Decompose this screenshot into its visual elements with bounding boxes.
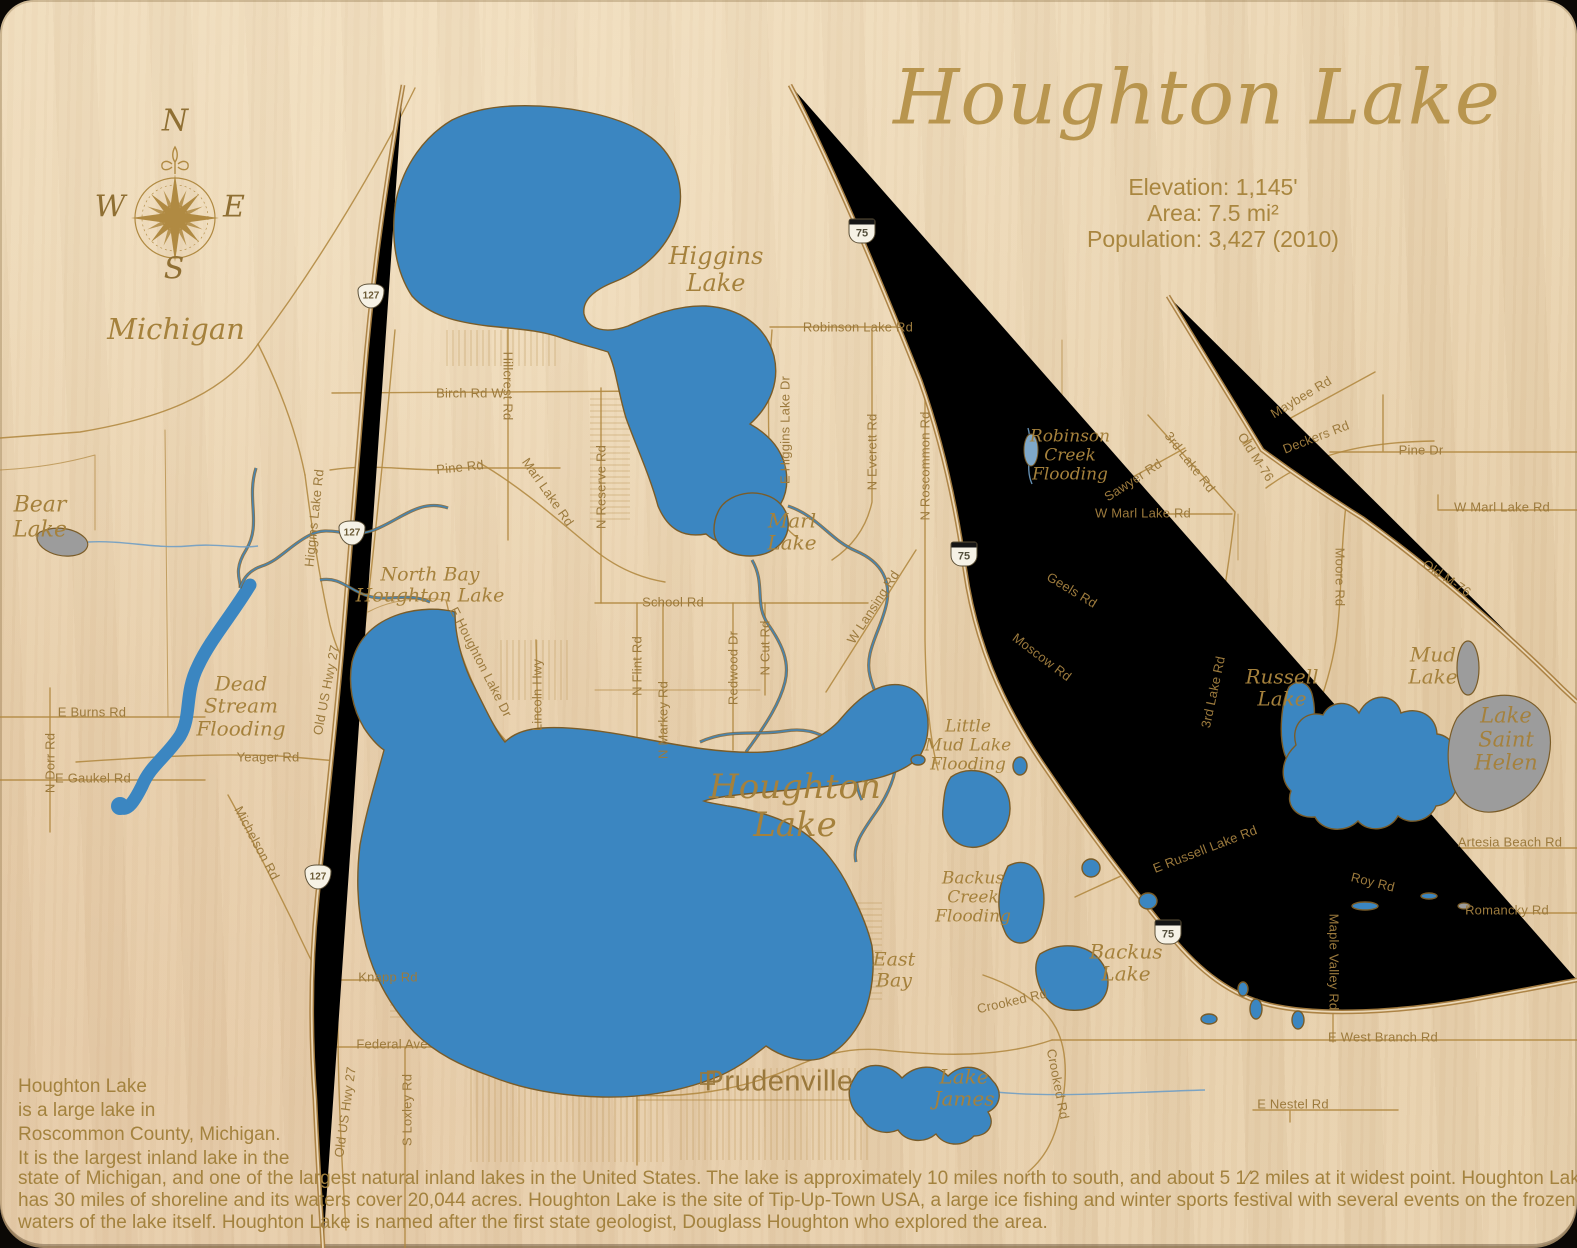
compass-east: E <box>223 190 245 225</box>
water-label: Backus Creek Flooding <box>935 869 1011 926</box>
stat-area: Area: 7.5 mi² <box>1087 200 1339 226</box>
road-label: N Markey Rd <box>656 681 671 759</box>
description-line: It is the largest inland lake in the <box>18 1148 289 1170</box>
road-label: Moore Rd <box>1333 548 1348 607</box>
road-label: Maple Valley Rd <box>1327 914 1342 1011</box>
road-label: N Roscommon Rd <box>918 412 933 521</box>
compass-west: W <box>95 190 126 225</box>
lake-stats: Elevation: 1,145' Area: 7.5 mi² Populati… <box>1087 174 1339 252</box>
road-label: E Burns Rd <box>58 705 126 720</box>
water-label: Little Mud Lake Flooding <box>925 717 1011 774</box>
mud-lake-water <box>1457 641 1479 695</box>
road-label: Yeager Rd <box>237 750 300 765</box>
water-label: Backus Lake <box>1089 941 1162 986</box>
highway-shield: 75 <box>1155 920 1182 945</box>
state-label: Michigan <box>107 312 245 346</box>
stat-population: Population: 3,427 (2010) <box>1087 226 1339 252</box>
water-label: East Bay <box>873 950 916 993</box>
water-label: Marl Lake <box>767 510 816 555</box>
sand-lake-water <box>1283 697 1457 829</box>
highway-number: 127 <box>363 285 380 308</box>
water-label: Dead Stream Flooding <box>196 672 285 739</box>
road-label: Lincoln Hwy <box>530 659 545 731</box>
road-label: E Nestel Rd <box>1257 1097 1329 1112</box>
water-label: Lake James <box>933 1066 994 1111</box>
water-label: Mud Lake <box>1408 644 1457 689</box>
water-label: Higgins Lake <box>669 243 764 297</box>
water-label: Russell Lake <box>1245 666 1318 711</box>
compass-north: N <box>162 104 188 139</box>
highway-number: 75 <box>958 548 970 566</box>
road-label: E Higgins Lake Dr <box>778 376 793 484</box>
little-mud-lake-water <box>943 771 1010 848</box>
highway-number: 127 <box>310 866 327 889</box>
road-label: Artesia Beach Rd <box>1458 835 1562 850</box>
road-label: S Loxley Rd <box>400 1074 415 1146</box>
road-label: E Gaukel Rd <box>55 771 131 786</box>
road-label: Birch Rd W <box>436 386 504 401</box>
page-title: Houghton Lake <box>893 53 1501 142</box>
road-label: N Flint Rd <box>630 636 645 696</box>
water-label: Lake Saint Helen <box>1474 705 1537 776</box>
description-line: has 30 miles of shoreline and its waters… <box>18 1190 1576 1212</box>
highway-number: 75 <box>1162 926 1174 944</box>
description-line: waters of the lake itself. Houghton Lake… <box>18 1212 1048 1234</box>
road-label: N Reserve Rd <box>594 445 609 529</box>
road-label: Federal Ave <box>356 1037 427 1052</box>
road-label: E West Branch Rd <box>1328 1030 1438 1045</box>
road-label: Romancky Rd <box>1465 903 1549 918</box>
road-label: Pine Dr <box>1399 443 1444 458</box>
road-label: W Marl Lake Rd <box>1454 500 1550 515</box>
highway-number: 75 <box>856 225 868 243</box>
road-label: W Marl Lake Rd <box>1095 506 1191 521</box>
water-label: Houghton Lake <box>709 768 881 844</box>
description-line: Roscommon County, Michigan. <box>18 1124 281 1146</box>
road-label: Redwood Dr <box>726 631 741 705</box>
city-label-prudenville: Prudenville <box>705 1066 854 1099</box>
water-label: North Bay Houghton Lake <box>356 565 505 608</box>
stat-elevation: Elevation: 1,145' <box>1087 174 1339 200</box>
road-label: Knapp Rd <box>358 970 417 985</box>
water-label: Robinson Creek Flooding <box>1030 427 1110 484</box>
highway-shield: 75 <box>951 542 978 567</box>
description-line: is a large lake in <box>18 1100 155 1122</box>
wooden-map: N E S W Houghton Lake Elevation: 1,145' … <box>0 0 1577 1248</box>
road-label: Robinson Lake Rd <box>803 320 913 335</box>
description-line: Houghton Lake <box>18 1076 147 1098</box>
water-label: Bear Lake <box>13 493 67 542</box>
road-label: Hillcrest Rd <box>501 352 516 421</box>
description-line: state of Michigan, and one of the larges… <box>18 1168 1577 1190</box>
highway-number: 127 <box>344 522 361 545</box>
map-canvas <box>0 0 1577 1248</box>
road-label: N Cut Rd <box>758 620 773 675</box>
road-label: School Rd <box>642 595 704 610</box>
highway-shield: 75 <box>849 219 876 244</box>
compass-south: S <box>164 252 185 287</box>
road-label: N Everett Rd <box>865 414 880 491</box>
fleur-de-lis-icon <box>162 147 188 174</box>
